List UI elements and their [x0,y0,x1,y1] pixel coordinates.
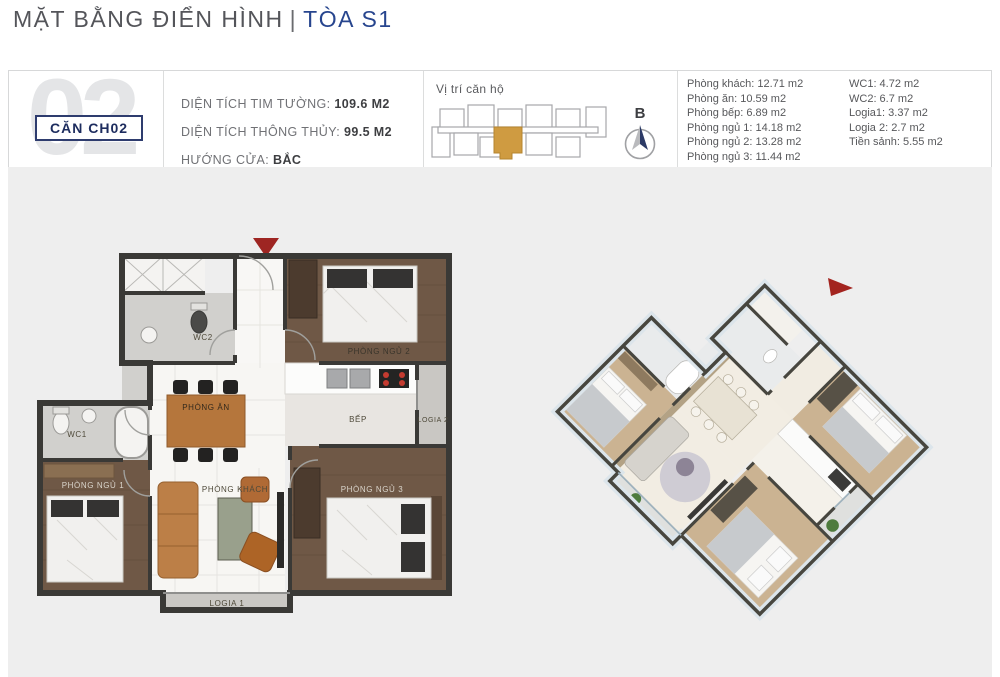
floorplan-3d-model [549,245,927,623]
label-wc2: WC2 [193,333,213,342]
label-wc1: WC1 [67,430,87,439]
label-bedroom3: PHÒNG NGỦ 3 [341,485,404,494]
floorplan-panel: WC2 PHÒNG NGỦ 2 BẾP LOGIA 2 WC1 PHÒNG ĂN… [8,167,992,677]
area-item: Logia1: 3.37 m2 [849,106,943,121]
label-dining: PHÒNG ĂN [182,403,229,412]
area-item: Phòng ngủ 3: 11.44 m2 [687,150,803,165]
areas-column-1: Phòng khách: 12.71 m2 Phòng ăn: 10.59 m2… [687,77,803,164]
area-item: Tiền sảnh: 5.55 m2 [849,135,943,150]
area-item: Phòng ngủ 2: 13.28 m2 [687,135,803,150]
spec-row: DIỆN TÍCH THÔNG THỦY: 99.5 M2 [181,118,392,146]
area-item: Phòng bếp: 6.89 m2 [687,106,803,121]
floorplan-2d: WC2 PHÒNG NGỦ 2 BẾP LOGIA 2 WC1 PHÒNG ĂN… [27,230,457,615]
area-item: WC2: 6.7 m2 [849,92,943,107]
floorplan-3d [497,222,987,627]
page-title-main: MẶT BẰNG ĐIỂN HÌNH [13,6,284,32]
page-title: MẶT BẰNG ĐIỂN HÌNH|TÒA S1 [13,6,393,33]
divider [423,71,424,167]
page-title-highlight: TÒA S1 [303,6,393,32]
spec-list: DIỆN TÍCH TIM TƯỜNG: 109.6 M2 DIỆN TÍCH … [181,90,392,174]
spec-row: DIỆN TÍCH TIM TƯỜNG: 109.6 M2 [181,90,392,118]
page-title-separator: | [290,6,297,32]
area-item: Phòng khách: 12.71 m2 [687,77,803,92]
compass: B [617,97,663,163]
spec-value: 99.5 M2 [344,125,392,139]
label-logia1: LOGIA 1 [210,599,245,608]
location-title: Vị trí căn hộ [436,82,504,96]
areas-column-2: WC1: 4.72 m2 WC2: 6.7 m2 Logia1: 3.37 m2… [849,77,943,150]
spec-value: 109.6 M2 [334,97,389,111]
area-item: Phòng ăn: 10.59 m2 [687,92,803,107]
spec-label: DIỆN TÍCH TIM TƯỜNG: [181,97,334,111]
spec-label: HƯỚNG CỬA: [181,153,273,167]
divider [163,71,164,167]
spec-label: DIỆN TÍCH THÔNG THỦY: [181,125,344,139]
building-diagram [430,103,610,165]
area-item: Logia 2: 2.7 m2 [849,121,943,136]
area-item: Phòng ngủ 1: 14.18 m2 [687,121,803,136]
brochure-page: MẶT BẰNG ĐIỂN HÌNH|TÒA S1 02 CĂN CH02 DI… [0,0,1000,677]
spec-value: BẮC [273,153,301,167]
label-logia2: LOGIA 2 [417,417,448,424]
unit-badge: CĂN CH02 [35,115,143,141]
divider [677,71,678,167]
area-item: WC1: 4.72 m2 [849,77,943,92]
label-bedroom2: PHÒNG NGỦ 2 [348,347,411,356]
compass-label: B [635,105,646,122]
entry-marker-3d-icon [828,278,853,296]
label-living: PHÒNG KHÁCH [202,485,268,494]
label-kitchen: BẾP [349,414,367,424]
unit-info-bar: 02 CĂN CH02 DIỆN TÍCH TIM TƯỜNG: 109.6 M… [8,70,992,168]
label-bedroom1: PHÒNG NGỦ 1 [62,481,125,490]
